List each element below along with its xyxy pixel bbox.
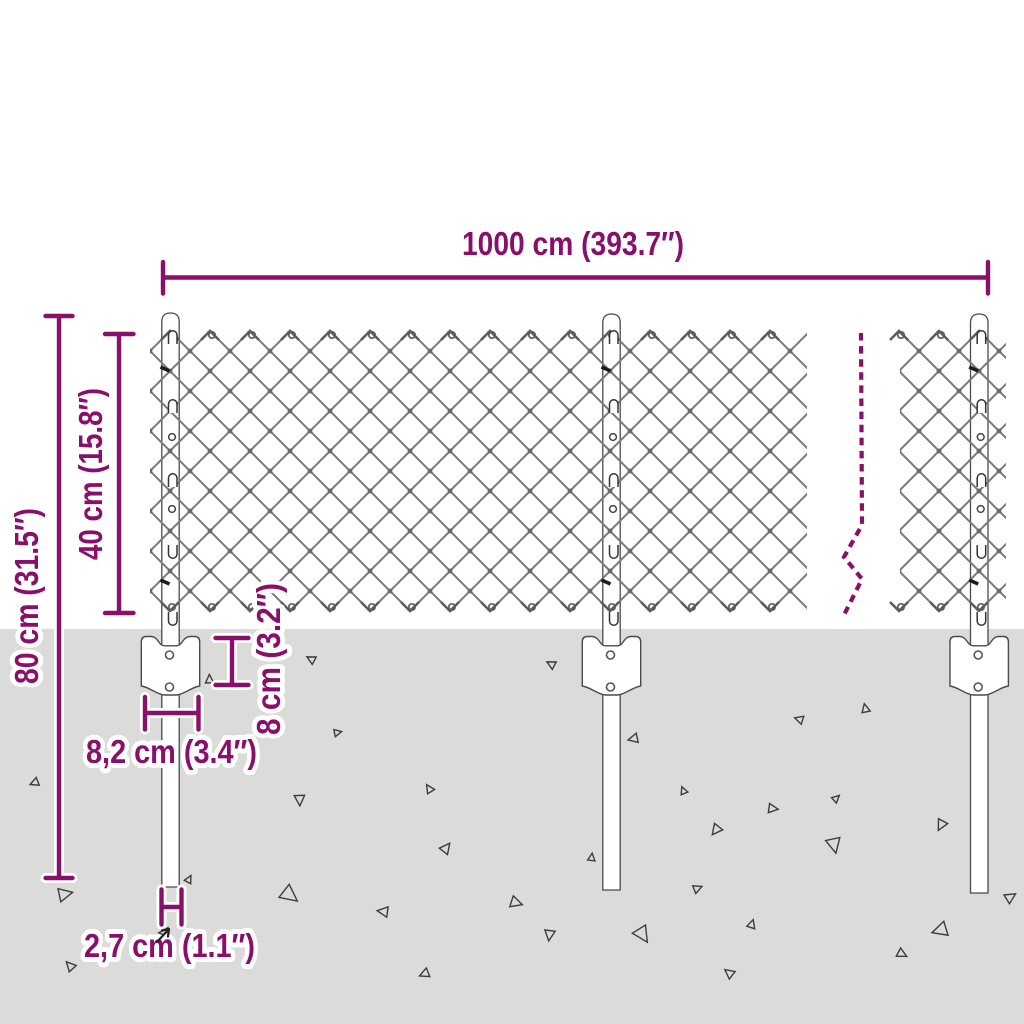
svg-text:8,2 cm (3.4″): 8,2 cm (3.4″)	[86, 733, 257, 770]
svg-text:80 cm (31.5″): 80 cm (31.5″)	[8, 508, 45, 684]
svg-text:8 cm (3.2″): 8 cm (3.2″)	[250, 583, 287, 735]
svg-text:1000 cm (393.7″): 1000 cm (393.7″)	[462, 225, 684, 262]
svg-text:40 cm (15.8″): 40 cm (15.8″)	[72, 388, 109, 560]
